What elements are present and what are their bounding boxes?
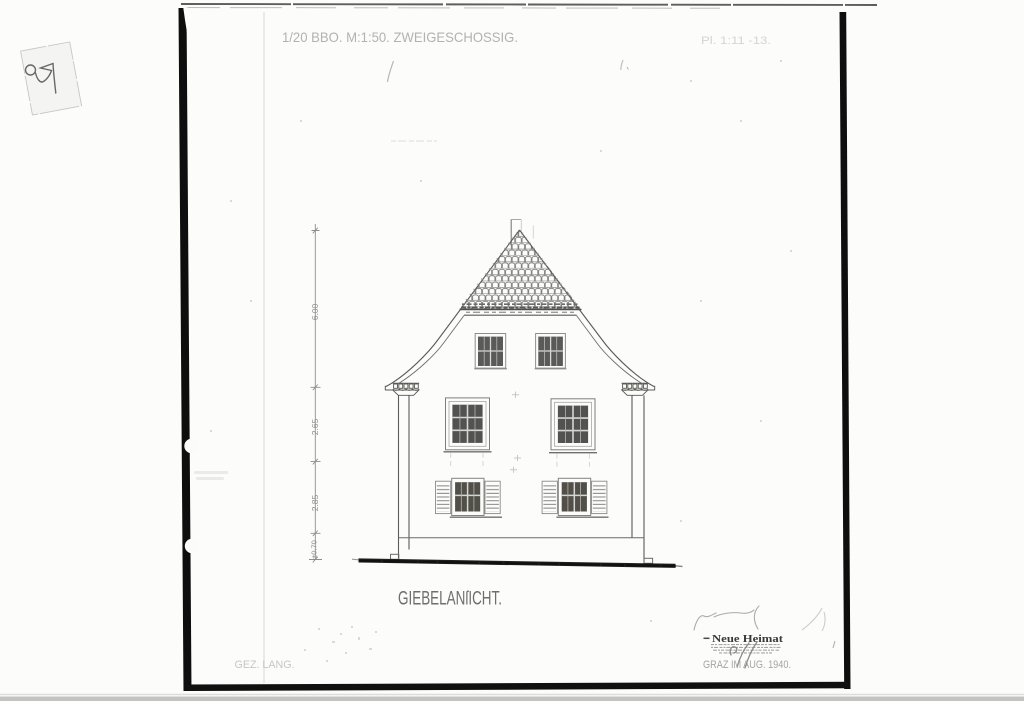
svg-text:2.65: 2.65 [310,418,320,435]
svg-text:Pl. 1:11 -13.: Pl. 1:11 -13. [701,35,771,47]
svg-text:6.00: 6.00 [310,303,320,320]
svg-text:1/20 BBO. M:1:50. ZWEIGESCHOSS: 1/20 BBO. M:1:50. ZWEIGESCHOSSIG. [282,29,518,45]
svg-text:±0.70: ±0.70 [310,540,319,559]
svg-text:GIEBELANſICHT.: GIEBELANſICHT. [398,589,502,610]
svg-text:Neue Heimat: Neue Heimat [712,633,783,645]
svg-text:GEZ. LANG.: GEZ. LANG. [235,659,295,671]
svg-text:GRAZ IM AUG. 1940.: GRAZ IM AUG. 1940. [703,659,791,671]
svg-text:2.85: 2.85 [310,494,320,511]
